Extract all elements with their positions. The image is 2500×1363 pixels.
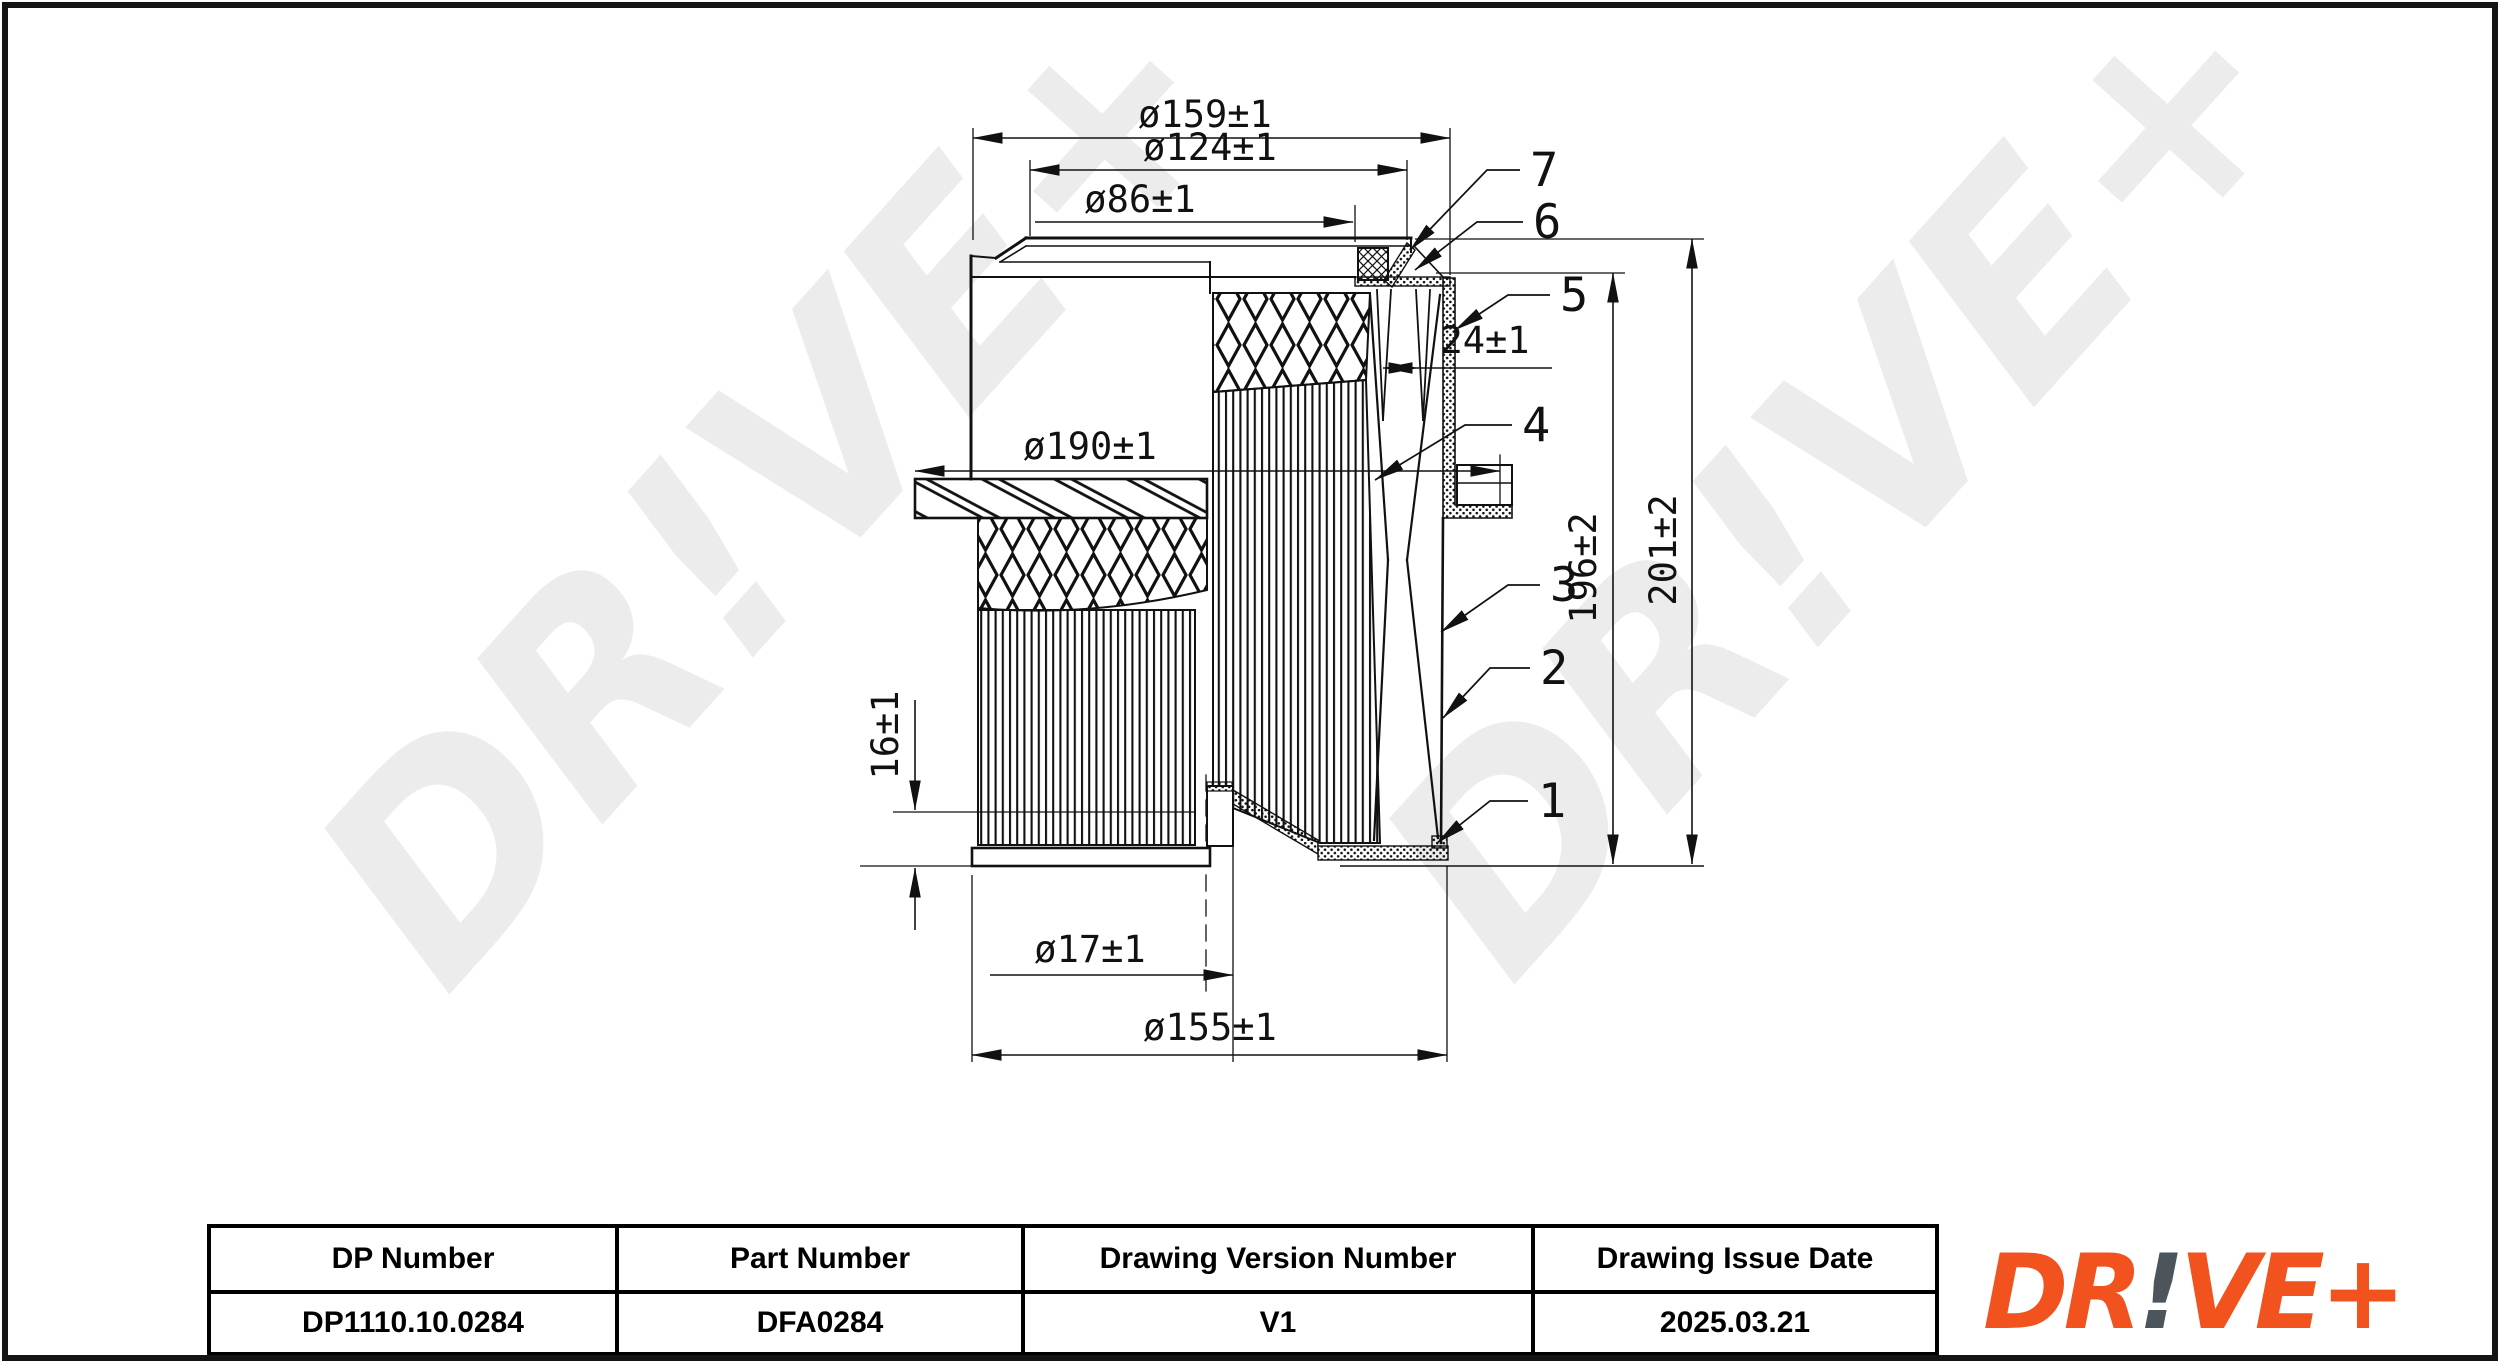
drawing-version-value: V1 bbox=[1023, 1292, 1533, 1354]
callout-7: 7 bbox=[1530, 143, 1558, 198]
dim-124: ø124±1 bbox=[1143, 126, 1277, 169]
drawing-page: DR!VE+ DR!VE+ bbox=[0, 0, 2500, 1363]
logo-veplus: VE+ bbox=[2180, 1233, 2401, 1353]
safety-element bbox=[915, 479, 1210, 866]
main-element bbox=[1213, 293, 1380, 843]
callout-4: 4 bbox=[1522, 398, 1550, 453]
dim-16: 16±1 bbox=[864, 690, 907, 779]
title-block: DP Number Part Number Drawing Version Nu… bbox=[207, 1224, 1939, 1356]
brand-logo: DR!VE+ bbox=[1983, 1240, 2483, 1350]
logo-dr: DR bbox=[1983, 1233, 2138, 1353]
dp-number-value: DP1110.10.0284 bbox=[209, 1292, 617, 1354]
logo-bang-icon: ! bbox=[2138, 1233, 2180, 1353]
title-block-header-row: DP Number Part Number Drawing Version Nu… bbox=[209, 1226, 1937, 1292]
callout-5: 5 bbox=[1560, 268, 1588, 323]
callout-1: 1 bbox=[1538, 774, 1566, 829]
dim-155: ø155±1 bbox=[1143, 1006, 1277, 1049]
title-block-value-row: DP1110.10.0284 DFA0284 V1 2025.03.21 bbox=[209, 1292, 1937, 1354]
technical-drawing: DR!VE+ DR!VE+ bbox=[0, 0, 2500, 1363]
issue-date-value: 2025.03.21 bbox=[1533, 1292, 1937, 1354]
issue-date-header: Drawing Issue Date bbox=[1533, 1226, 1937, 1292]
dim-190: ø190±1 bbox=[1023, 425, 1157, 468]
housing-channel bbox=[1443, 278, 1512, 518]
callout-3: 3 bbox=[1550, 558, 1578, 613]
drawing-version-header: Drawing Version Number bbox=[1023, 1226, 1533, 1292]
callout-2: 2 bbox=[1540, 641, 1568, 696]
dp-number-header: DP Number bbox=[209, 1226, 617, 1292]
seal-and-seat bbox=[1355, 243, 1450, 287]
dim-86: ø86±1 bbox=[1084, 178, 1195, 221]
callout-6: 6 bbox=[1533, 195, 1561, 250]
part-number-header: Part Number bbox=[617, 1226, 1023, 1292]
dim-201: 201±2 bbox=[1642, 494, 1685, 605]
dim-24: 24±1 bbox=[1440, 319, 1529, 362]
part-number-value: DFA0284 bbox=[617, 1292, 1023, 1354]
dim-17: ø17±1 bbox=[1034, 928, 1145, 971]
